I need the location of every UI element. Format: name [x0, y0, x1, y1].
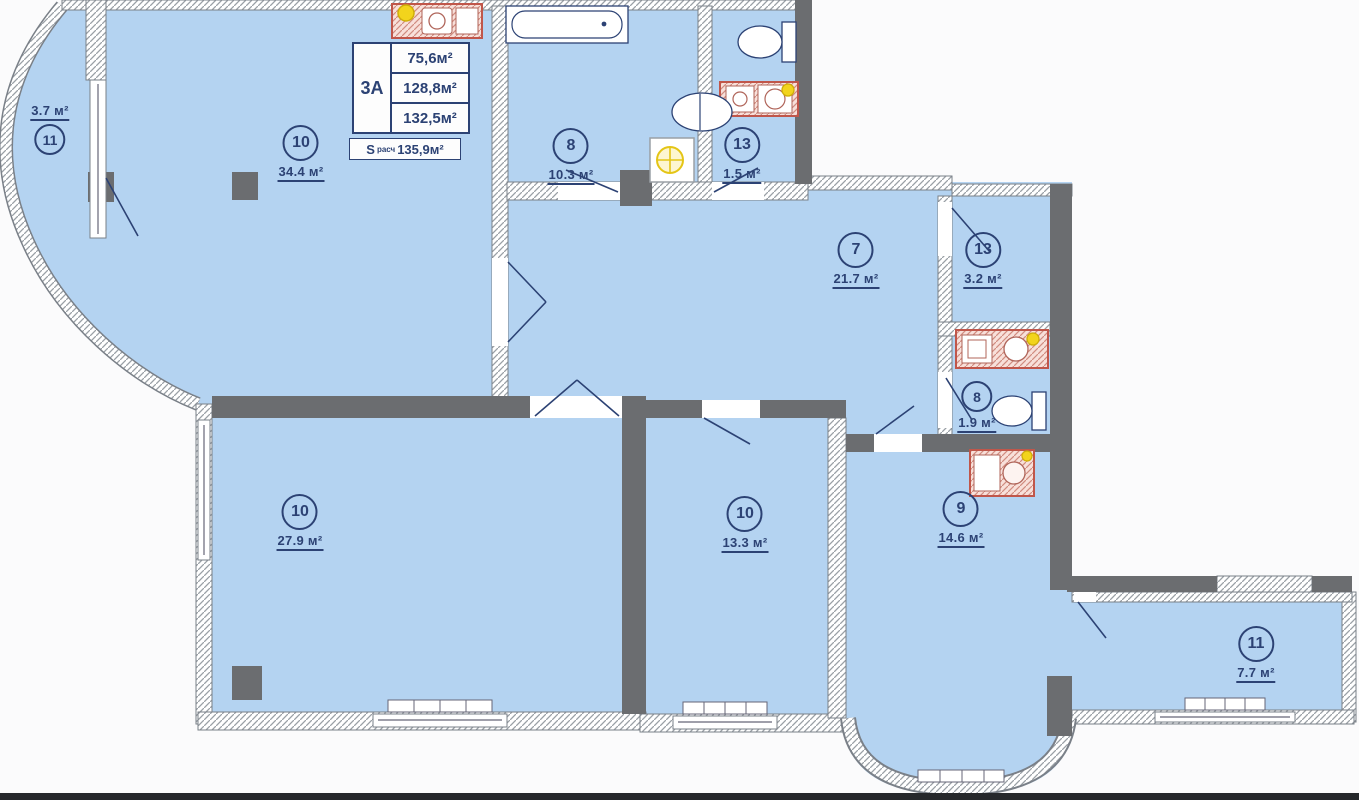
room-number-badge: 13	[965, 232, 1001, 268]
room-area: 34.4 м²	[278, 164, 325, 182]
kitchen-sink-icon	[392, 4, 482, 38]
room-number-badge: 10	[282, 494, 318, 530]
apartment-info-box: 3А 75,6м² 128,8м² 132,5м²	[352, 42, 470, 134]
room-area: 27.9 м²	[277, 533, 324, 551]
column	[232, 172, 258, 200]
water-heater-icon	[650, 138, 694, 182]
room-number-badge: 8	[962, 381, 993, 412]
kitchen-sink-icon	[970, 450, 1034, 496]
room-area: 3.2 м²	[963, 271, 1002, 289]
s-label: S	[366, 142, 375, 157]
washing-machine-icon	[956, 330, 1048, 368]
calculated-area-box: Sрасч 135,9м²	[349, 138, 461, 160]
room-area: 21.7 м²	[833, 271, 880, 289]
floorplan-canvas	[0, 0, 1359, 800]
column	[620, 170, 652, 206]
room-number-badge: 11	[1238, 626, 1274, 662]
unit-label: 3А	[354, 44, 392, 132]
room-number-badge: 13	[724, 127, 760, 163]
s-value: 135,9м²	[397, 142, 443, 157]
room-label-living-10: 10 34.4 м²	[278, 125, 325, 182]
room-number-badge: 10	[283, 125, 319, 161]
room-label-balcony2-11: 11 7.7 м²	[1236, 626, 1275, 683]
sink-icon	[672, 93, 732, 131]
room-area: 13.3 м²	[722, 535, 769, 553]
room-label-closet-13: 13 3.2 м²	[963, 232, 1002, 289]
room-number-badge: 7	[838, 232, 874, 268]
radiator-icon	[918, 770, 1004, 782]
living-area-value: 75,6м²	[392, 44, 468, 74]
room-label-bedroom-10a: 10 27.9 м²	[277, 494, 324, 551]
column	[1047, 676, 1072, 736]
area-summary-rows: 75,6м² 128,8м² 132,5м²	[392, 44, 468, 132]
room-label-bathroom-8: 8 10.3 м²	[548, 128, 595, 185]
room-number-badge: 11	[35, 124, 66, 155]
room-number-badge: 9	[943, 491, 979, 527]
room-area: 14.6 м²	[938, 530, 985, 548]
room-number-badge: 10	[727, 496, 763, 532]
room-label-wc-13: 13 1.5 м²	[722, 127, 761, 184]
room-label-bedroom-10b: 10 13.3 м²	[722, 496, 769, 553]
bathtub-icon	[506, 6, 628, 43]
room-area: 7.7 м²	[1236, 665, 1275, 683]
radiator-icon	[1185, 698, 1265, 710]
column	[232, 666, 262, 700]
area-value: 128,8м²	[392, 74, 468, 104]
room-area: 1.9 м²	[957, 415, 996, 433]
room-area: 3.7 м²	[30, 103, 69, 121]
total-area-value: 132,5м²	[392, 104, 468, 132]
s-sub-label: расч	[377, 145, 395, 154]
room-label-balcony-11: 11 3.7 м²	[30, 103, 69, 155]
radiator-icon	[388, 700, 492, 712]
floorplan-page: 3А 75,6м² 128,8м² 132,5м² Sрасч 135,9м² …	[0, 0, 1359, 800]
room-area: 1.5 м²	[722, 166, 761, 184]
room-label-kitchen-9: 9 14.6 м²	[938, 491, 985, 548]
room-label-bathroom2-8: 8 1.9 м²	[957, 381, 996, 433]
room-label-hall-7: 7 21.7 м²	[833, 232, 880, 289]
radiator-icon	[683, 702, 767, 714]
photo-edge	[0, 793, 1359, 800]
room-number-badge: 8	[553, 128, 589, 164]
room-area: 10.3 м²	[548, 167, 595, 185]
